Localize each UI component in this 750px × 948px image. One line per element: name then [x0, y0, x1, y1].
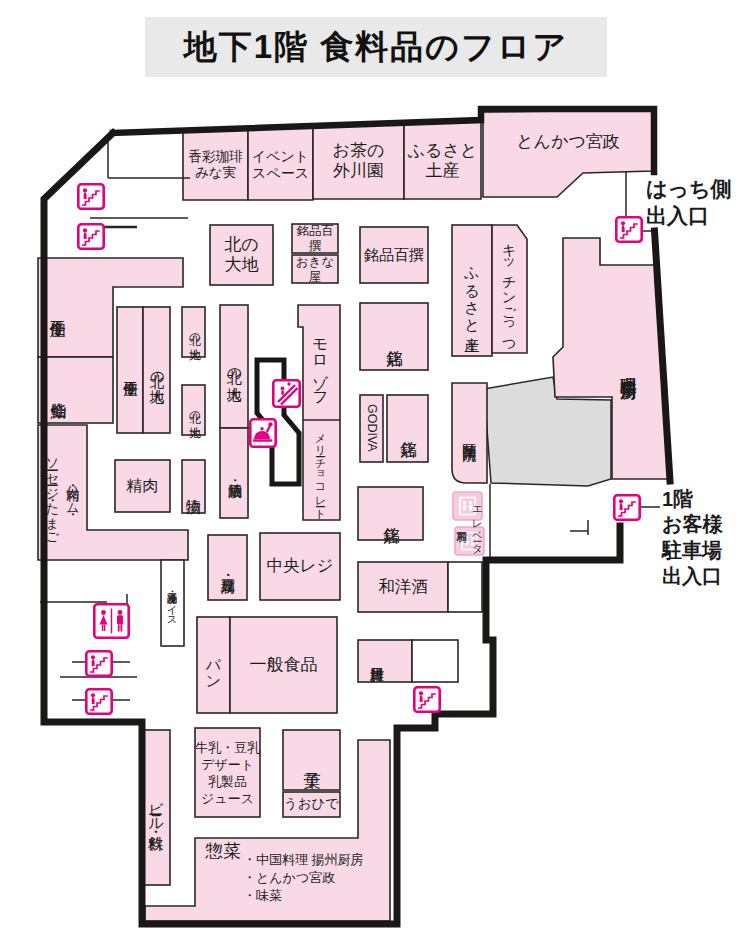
store-kita-daichi-small1-area [182, 307, 205, 357]
store-tsukemono-natto-area [220, 428, 248, 518]
store-kita-daichi-main-area [210, 225, 273, 285]
store-meihin-small-area [292, 224, 338, 253]
store-kita-daichi-tall-area [220, 305, 248, 428]
store-senrei-heisho-inner-area [117, 307, 143, 433]
store-event-space-area [248, 127, 313, 200]
stairs-icon-parking-entrance [614, 495, 639, 519]
store-kosai-coffee-area [183, 129, 248, 200]
store-kashi-area [283, 730, 340, 790]
nichiyo-side-room [412, 640, 458, 682]
store-meiten2-area [387, 395, 428, 462]
store-kita-daichi-inner-area [143, 307, 170, 433]
stairs-icon [86, 689, 111, 713]
store-ocha-togawaen-area [313, 124, 404, 199]
escalator-icon [273, 380, 299, 406]
store-meiten1-area [360, 303, 428, 370]
store-tofu-men-area [208, 535, 247, 600]
store-ippan-area [230, 617, 337, 713]
store-furusato-top-area [404, 121, 481, 199]
stairs-icon [414, 687, 439, 711]
store-gyunyu-area [195, 728, 260, 817]
floor-area [44, 109, 670, 924]
wayoshu-side-room [448, 562, 482, 612]
store-wayoshu-area [358, 562, 448, 612]
store-okinaya-area [292, 255, 338, 283]
store-senrei-zushi-area [38, 357, 113, 423]
store-meiten3-area [358, 487, 423, 540]
store-kita-daichi-small2-area [182, 385, 205, 435]
store-seiniku-area [115, 460, 170, 512]
store-furusato-v-area [452, 225, 492, 356]
store-kitchen-gottsu-area [492, 225, 527, 353]
store-beer-area [142, 730, 170, 885]
store-morozoff-column-area [298, 305, 340, 520]
floor-map-page: 地下1階 食料品のフロア [0, 0, 750, 948]
store-pan-area [197, 617, 230, 713]
food-court-icon [250, 419, 275, 446]
elevator-icon [453, 492, 482, 520]
store-nichiyo-area [358, 640, 412, 682]
store-seikanin-area [452, 383, 487, 483]
restroom-icon [94, 604, 128, 637]
elevator-icon [455, 527, 484, 555]
floor-map-svg [0, 0, 750, 948]
reito-ice-box [161, 560, 184, 646]
store-meihin-wide-area [360, 227, 428, 283]
store-godiva-area [360, 395, 383, 462]
stairs-icon-hatchi-entrance [616, 217, 641, 241]
store-tsukemono-small-area [182, 460, 205, 513]
stairs-icon [78, 184, 103, 208]
store-chuo-reji-area [260, 533, 340, 600]
stairs-icon [78, 224, 103, 248]
stairs-icon [86, 651, 111, 675]
store-uohide-area [283, 792, 340, 817]
